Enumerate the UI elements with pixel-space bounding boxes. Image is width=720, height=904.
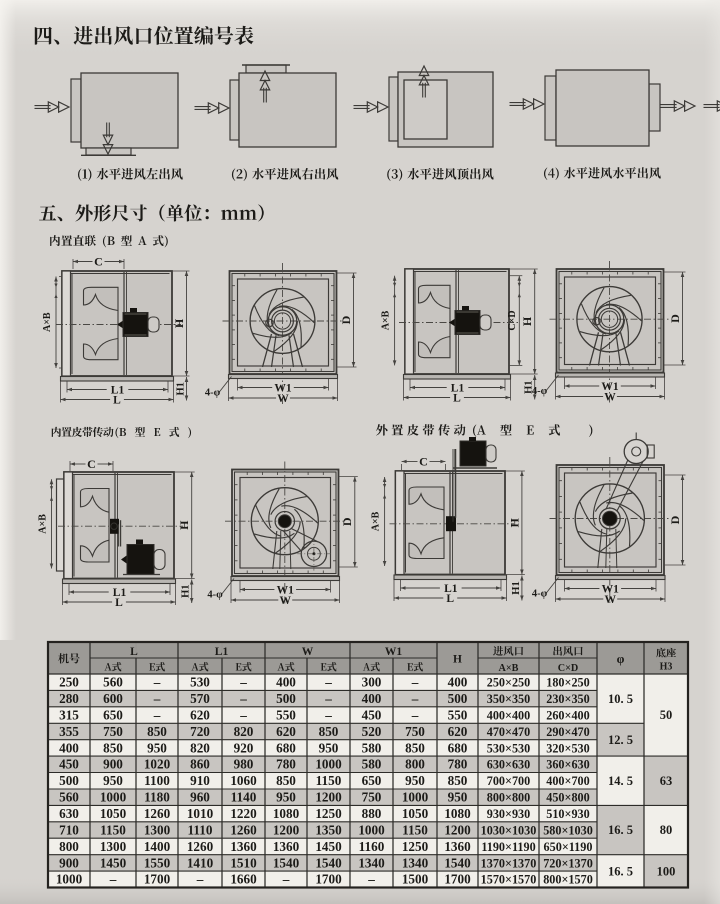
- svg-text:400: 400: [59, 740, 79, 755]
- svg-text:315: 315: [59, 708, 79, 723]
- svg-text:–: –: [196, 872, 204, 887]
- svg-text:850: 850: [147, 724, 167, 739]
- svg-text:1110: 1110: [188, 822, 213, 837]
- svg-text:4-φ: 4-φ: [532, 589, 548, 600]
- svg-text:520: 520: [362, 724, 382, 739]
- svg-text:H: H: [507, 517, 521, 527]
- svg-text:820: 820: [234, 724, 254, 739]
- svg-text:1250: 1250: [402, 839, 429, 854]
- svg-text:290×470: 290×470: [546, 725, 590, 739]
- svg-text:900: 900: [103, 757, 123, 772]
- svg-text:W: W: [279, 595, 291, 607]
- svg-text:1350: 1350: [315, 822, 342, 837]
- svg-text:H: H: [177, 520, 191, 530]
- svg-text:320×530: 320×530: [546, 741, 590, 755]
- svg-text:–: –: [153, 675, 161, 690]
- svg-text:400×700: 400×700: [546, 774, 590, 788]
- svg-text:–: –: [324, 691, 332, 706]
- svg-text:A×B: A×B: [37, 514, 48, 534]
- svg-text:1340: 1340: [402, 855, 429, 870]
- svg-text:4-φ: 4-φ: [207, 590, 223, 601]
- svg-text:–: –: [153, 708, 161, 723]
- svg-text:450×800: 450×800: [546, 791, 590, 805]
- svg-text:570: 570: [190, 691, 210, 706]
- svg-text:530: 530: [190, 675, 210, 690]
- svg-text:400: 400: [276, 675, 296, 690]
- svg-text:560: 560: [103, 675, 123, 690]
- svg-text:620: 620: [190, 708, 210, 723]
- svg-text:900: 900: [59, 855, 79, 870]
- svg-text:D: D: [339, 315, 353, 324]
- svg-text:630: 630: [59, 806, 79, 821]
- svg-text:250×250: 250×250: [487, 676, 531, 690]
- svg-text:A×B: A×B: [370, 511, 381, 531]
- svg-text:710: 710: [59, 822, 79, 837]
- svg-text:1160: 1160: [359, 839, 385, 854]
- svg-text:400×400: 400×400: [487, 709, 531, 723]
- svg-text:1540: 1540: [444, 855, 471, 870]
- svg-text:780: 780: [276, 757, 296, 772]
- svg-text:W1: W1: [385, 646, 403, 658]
- svg-text:1260: 1260: [187, 839, 214, 854]
- svg-text:D: D: [668, 314, 682, 323]
- svg-text:1260: 1260: [230, 822, 257, 837]
- svg-text:1050: 1050: [100, 806, 127, 821]
- svg-text:D: D: [340, 517, 354, 526]
- svg-text:800: 800: [59, 839, 79, 854]
- svg-text:470×470: 470×470: [487, 725, 531, 739]
- svg-text:H: H: [172, 318, 186, 328]
- svg-text:H: H: [453, 654, 462, 666]
- svg-text:280: 280: [59, 691, 79, 706]
- svg-text:950: 950: [147, 740, 167, 755]
- svg-text:230×350: 230×350: [546, 692, 590, 706]
- svg-text:1000: 1000: [402, 790, 429, 805]
- svg-text:950: 950: [448, 790, 468, 805]
- svg-text:910: 910: [190, 773, 210, 788]
- svg-text:350×350: 350×350: [487, 692, 531, 706]
- svg-text:650: 650: [362, 773, 382, 788]
- svg-text:1700: 1700: [315, 872, 342, 887]
- svg-text:100: 100: [657, 864, 676, 878]
- svg-text:1010: 1010: [187, 806, 214, 821]
- svg-text:850: 850: [448, 773, 468, 788]
- svg-text:700×700: 700×700: [487, 774, 531, 788]
- svg-text:50: 50: [660, 708, 673, 722]
- svg-text:–: –: [239, 675, 247, 690]
- svg-text:1360: 1360: [273, 839, 300, 854]
- svg-text:–: –: [239, 691, 247, 706]
- svg-text:12. 5: 12. 5: [608, 733, 633, 747]
- svg-text:550: 550: [448, 708, 468, 723]
- svg-text:1260: 1260: [144, 806, 171, 821]
- svg-text:500: 500: [276, 691, 296, 706]
- svg-text:800×1570: 800×1570: [543, 873, 593, 887]
- svg-text:720: 720: [190, 724, 210, 739]
- svg-text:C×D: C×D: [558, 663, 579, 674]
- svg-text:1200: 1200: [315, 790, 342, 805]
- svg-text:–: –: [153, 691, 161, 706]
- svg-text:L1: L1: [215, 646, 229, 658]
- svg-text:–: –: [411, 708, 419, 723]
- svg-text:1050: 1050: [402, 806, 429, 821]
- svg-text:D: D: [668, 515, 682, 524]
- svg-text:1700: 1700: [144, 872, 171, 887]
- svg-text:1300: 1300: [100, 839, 127, 854]
- svg-text:180×250: 180×250: [546, 676, 590, 690]
- svg-text:φ: φ: [617, 652, 625, 666]
- svg-text:750: 750: [103, 724, 123, 739]
- svg-text:950: 950: [276, 790, 296, 805]
- svg-text:L: L: [453, 392, 461, 404]
- svg-text:850: 850: [276, 773, 296, 788]
- svg-text:930×930: 930×930: [487, 807, 531, 821]
- svg-text:1080: 1080: [444, 806, 471, 821]
- svg-text:920: 920: [234, 740, 254, 755]
- svg-text:780: 780: [448, 757, 468, 772]
- svg-text:450: 450: [59, 757, 79, 772]
- svg-text:560: 560: [59, 790, 79, 805]
- svg-text:4-φ: 4-φ: [532, 386, 548, 397]
- svg-text:250: 250: [59, 675, 79, 690]
- svg-text:L: L: [113, 394, 121, 406]
- svg-text:1140: 1140: [231, 790, 257, 805]
- svg-text:16. 5: 16. 5: [608, 823, 633, 837]
- svg-text:1150: 1150: [100, 822, 126, 837]
- svg-text:–: –: [282, 872, 290, 887]
- svg-text:1570×1570: 1570×1570: [481, 873, 537, 887]
- svg-text:–: –: [324, 708, 332, 723]
- svg-text:620: 620: [448, 724, 468, 739]
- svg-text:400: 400: [448, 675, 468, 690]
- svg-text:620: 620: [276, 724, 296, 739]
- svg-text:630×630: 630×630: [487, 758, 531, 772]
- svg-text:500: 500: [59, 773, 79, 788]
- svg-text:950: 950: [103, 773, 123, 788]
- svg-text:500: 500: [448, 691, 468, 706]
- svg-text:H: H: [520, 316, 534, 326]
- svg-text:850: 850: [319, 724, 339, 739]
- svg-text:63: 63: [660, 774, 673, 788]
- svg-text:1410: 1410: [187, 855, 214, 870]
- svg-text:H1: H1: [181, 584, 192, 597]
- svg-text:A×B: A×B: [42, 312, 53, 332]
- svg-text:1000: 1000: [100, 790, 127, 805]
- svg-text:680: 680: [276, 740, 296, 755]
- svg-text:1000: 1000: [315, 757, 342, 772]
- svg-text:950: 950: [319, 740, 339, 755]
- svg-text:1450: 1450: [315, 839, 342, 854]
- svg-text:950: 950: [405, 773, 425, 788]
- svg-text:W: W: [604, 594, 616, 606]
- svg-text:860: 860: [190, 757, 210, 772]
- svg-text:600: 600: [103, 691, 123, 706]
- svg-text:L: L: [115, 597, 123, 609]
- svg-text:–: –: [324, 675, 332, 690]
- svg-text:H1: H1: [511, 581, 522, 594]
- svg-text:H3: H3: [660, 662, 673, 673]
- svg-text:C: C: [419, 455, 428, 469]
- svg-text:10. 5: 10. 5: [608, 692, 633, 706]
- svg-text:1000: 1000: [56, 872, 83, 887]
- svg-text:580: 580: [362, 740, 382, 755]
- svg-text:W: W: [302, 646, 314, 658]
- svg-text:1200: 1200: [444, 822, 471, 837]
- svg-text:1660: 1660: [230, 872, 257, 887]
- svg-text:–: –: [367, 872, 375, 887]
- svg-text:4-φ: 4-φ: [205, 388, 221, 399]
- svg-text:800×800: 800×800: [487, 791, 531, 805]
- svg-text:–: –: [411, 691, 419, 706]
- svg-text:1370×1370: 1370×1370: [481, 856, 537, 870]
- svg-text:355: 355: [59, 724, 79, 739]
- svg-text:720×1370: 720×1370: [543, 856, 593, 870]
- svg-text:1400: 1400: [144, 839, 171, 854]
- svg-text:530×530: 530×530: [487, 741, 531, 755]
- svg-text:450: 450: [362, 708, 382, 723]
- svg-text:1180: 1180: [144, 790, 170, 805]
- svg-text:C: C: [87, 457, 96, 471]
- svg-text:80: 80: [660, 823, 673, 837]
- svg-text:L: L: [446, 593, 454, 605]
- svg-text:–: –: [109, 872, 117, 887]
- svg-text:1100: 1100: [144, 773, 170, 788]
- svg-text:400: 400: [362, 691, 382, 706]
- svg-text:–: –: [411, 675, 419, 690]
- svg-text:1450: 1450: [100, 855, 127, 870]
- svg-text:1360: 1360: [230, 839, 257, 854]
- svg-text:A×B: A×B: [499, 663, 519, 674]
- svg-text:580×1030: 580×1030: [543, 823, 593, 837]
- svg-text:650: 650: [103, 708, 123, 723]
- svg-text:–: –: [239, 708, 247, 723]
- svg-text:H1: H1: [175, 382, 186, 395]
- svg-text:1510: 1510: [230, 855, 257, 870]
- svg-text:W: W: [277, 393, 289, 405]
- svg-text:550: 550: [276, 708, 296, 723]
- svg-text:960: 960: [190, 790, 210, 805]
- svg-text:W: W: [604, 391, 616, 403]
- svg-text:360×630: 360×630: [546, 758, 590, 772]
- svg-text:1190×1190: 1190×1190: [481, 840, 535, 854]
- svg-text:1030×1030: 1030×1030: [481, 823, 537, 837]
- svg-text:510×930: 510×930: [546, 807, 590, 821]
- svg-text:1540: 1540: [315, 855, 342, 870]
- svg-text:1020: 1020: [144, 757, 171, 772]
- svg-text:1540: 1540: [273, 855, 300, 870]
- svg-text:1150: 1150: [402, 822, 428, 837]
- svg-text:260×400: 260×400: [546, 709, 590, 723]
- svg-text:1340: 1340: [358, 855, 385, 870]
- svg-text:1200: 1200: [273, 822, 300, 837]
- svg-text:1700: 1700: [444, 872, 471, 887]
- svg-text:750: 750: [405, 724, 425, 739]
- svg-text:850: 850: [103, 740, 123, 755]
- svg-text:820: 820: [190, 740, 210, 755]
- svg-text:L: L: [130, 646, 138, 658]
- svg-text:1150: 1150: [316, 773, 342, 788]
- svg-text:14. 5: 14. 5: [608, 774, 633, 788]
- svg-text:1250: 1250: [315, 806, 342, 821]
- svg-text:300: 300: [362, 675, 382, 690]
- svg-text:1500: 1500: [402, 872, 429, 887]
- svg-text:16. 5: 16. 5: [608, 864, 633, 878]
- svg-text:C: C: [94, 255, 103, 269]
- svg-text:1550: 1550: [144, 855, 171, 870]
- svg-text:580: 580: [362, 757, 382, 772]
- svg-text:980: 980: [234, 757, 254, 772]
- svg-text:850: 850: [405, 740, 425, 755]
- svg-text:1000: 1000: [358, 822, 385, 837]
- svg-text:800: 800: [405, 757, 425, 772]
- svg-text:650×1190: 650×1190: [544, 840, 593, 854]
- svg-text:1060: 1060: [230, 773, 257, 788]
- svg-text:680: 680: [448, 740, 468, 755]
- svg-text:C×D: C×D: [507, 310, 518, 330]
- svg-text:1220: 1220: [230, 806, 257, 821]
- svg-text:1080: 1080: [273, 806, 300, 821]
- svg-text:A×B: A×B: [380, 310, 391, 330]
- svg-text:1360: 1360: [444, 839, 471, 854]
- svg-text:1300: 1300: [144, 822, 171, 837]
- svg-text:750: 750: [362, 790, 382, 805]
- svg-text:880: 880: [362, 806, 382, 821]
